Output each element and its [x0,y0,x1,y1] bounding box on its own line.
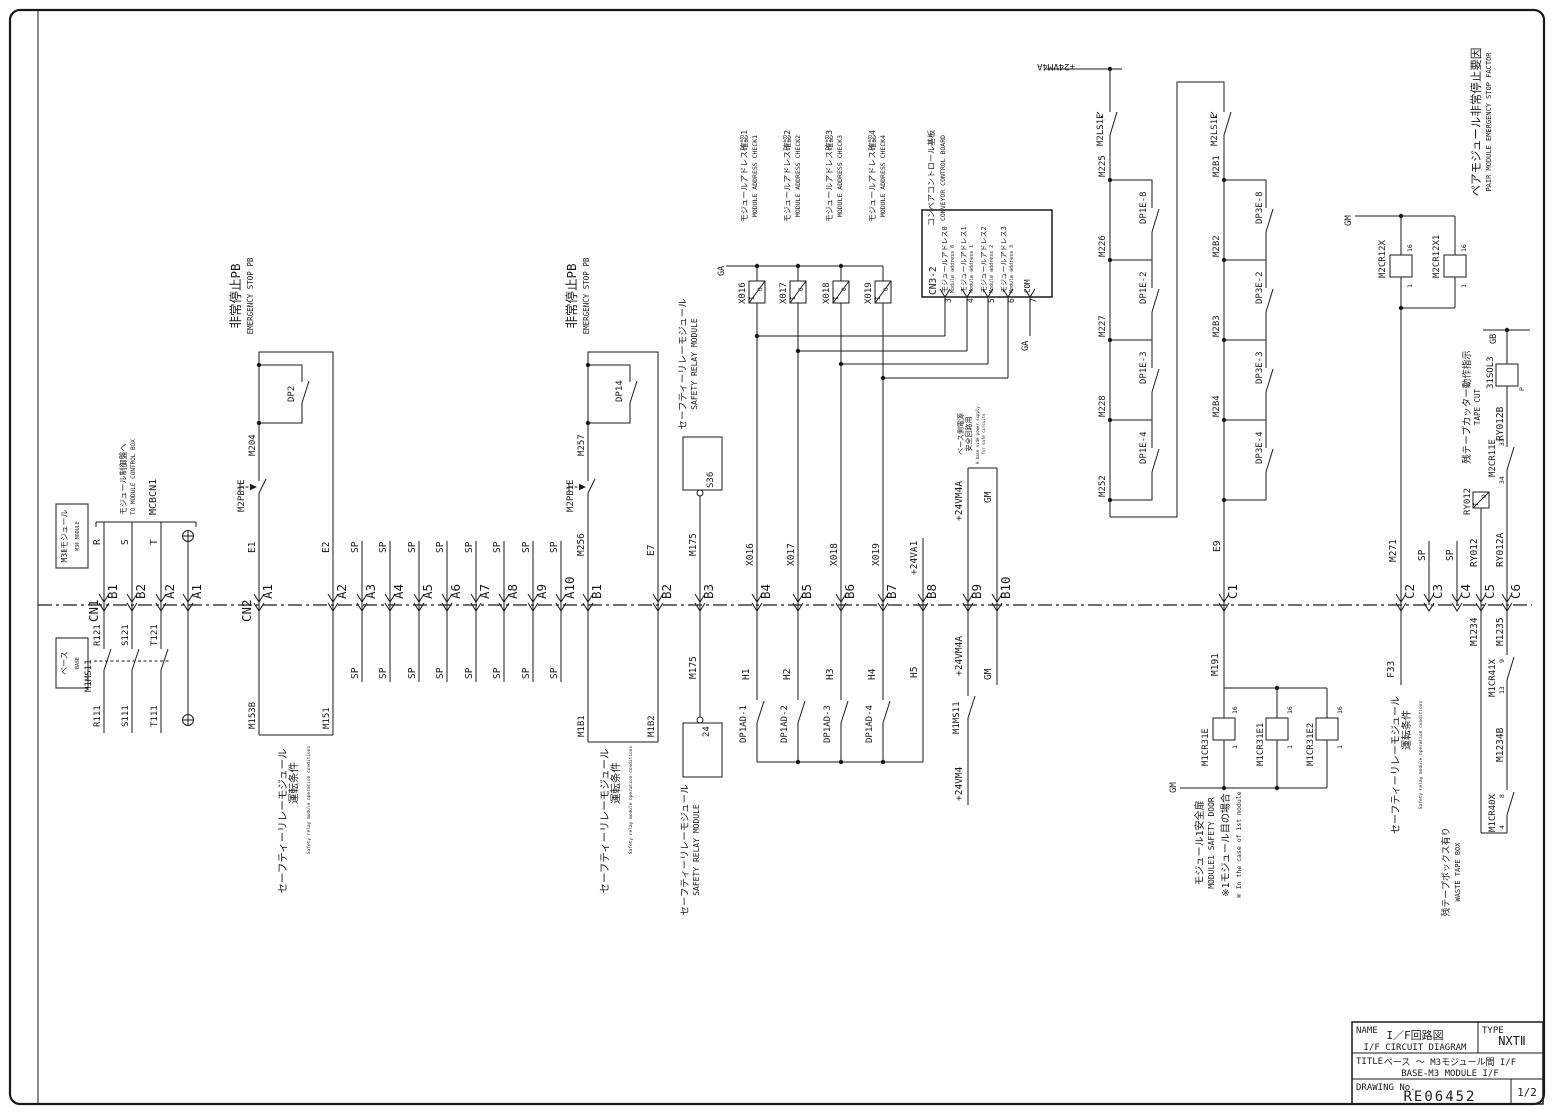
diagram-label: 34 [1498,476,1506,484]
diagram-label: ベース [60,651,69,675]
connector-pin-A2: A2 [328,584,349,611]
diagram-label: M257 [577,434,587,456]
sheet-frame [10,10,1544,1104]
connector-pin-A5: A5 [414,584,435,611]
diagram-label: A base side power supply. [975,404,980,464]
title-block-name-en: I/F CIRCUIT DIAGRAM [1364,1043,1468,1053]
diagram-label: 24 [702,726,712,737]
diagram-label: DP1E-4 [1139,431,1149,464]
diagram-label: I [833,296,840,300]
pin-label: A2 [334,584,349,599]
title-block-page: 1/2 [1517,1086,1537,1099]
diagram-label: M225 [1098,155,1108,177]
pin-label: B2 [133,584,148,599]
connector-pin-B10: B10 [992,576,1013,611]
diagram-label: DP14 [615,380,625,402]
diagram-label: X017 [786,543,797,566]
diagram-label: M1MS11 [84,659,94,692]
diagram-label: Safety relay module operation conditions [628,746,634,855]
diagram-label: O [757,287,764,291]
pin-label: B7 [884,584,899,599]
diagram-label: H3 [825,669,836,680]
diagram-label: M1B2 [647,715,657,737]
diagram-label: +24VM4A [954,481,965,521]
diagram-label: SP [378,667,389,679]
connector-pin-A2: A2 [156,584,177,611]
connector-pin-A7: A7 [471,584,492,611]
diagram-label: 運転条件 [609,762,622,804]
diagram-label: M2LS1E [1096,113,1106,146]
diagram-label: DP3E-4 [1255,431,1265,464]
diagram-label: MCBCN1 [148,479,159,515]
drawing-sheet: M3ⅡモジュールM3Ⅱ MODULEベースBASECN1モジュール制御盤へTO … [0,0,1554,1114]
diagram-label: Safety relay module operation conditions [306,746,312,855]
diagram-label: X018 [829,543,840,566]
title-block-title-label: TITLE [1356,1057,1383,1067]
diagram-label: 5 [987,298,996,303]
diagram-label: M175 [688,656,699,679]
diagram-label: M191 [1210,653,1221,676]
diagram-label: E2 [321,542,332,553]
diagram-label: O [1481,494,1488,498]
diagram-label: TAPE CUT [1473,388,1482,425]
diagram-label: M1MS11 [952,701,962,734]
diagram-label: WASTE TAPE BOX [1454,842,1462,902]
diagram-label: M3Ⅱモジュール [60,509,69,562]
diagram-label: E9 [1212,540,1223,552]
title-block-title-en: BASE-M3 MODULE I/F [1401,1069,1499,1079]
diagram-label: DP1E-3 [1139,351,1149,384]
diagram-label: M1CR31E [1201,728,1211,766]
diagram-label: M1234B [1495,727,1506,762]
diagram-label: M2PB1E [566,479,576,512]
pin-label: B1 [105,584,120,599]
diagram-label: MODULE ADDRESS CHECK1 [751,135,759,217]
diagram-label: GB [1489,334,1499,344]
diagram-label: M228 [1098,395,1108,417]
diagram-label: モジュールアドレス確認4 [867,130,877,222]
diagram-label: モジュール1安全扉 [1193,800,1206,885]
circuit-diagram: M3ⅡモジュールM3Ⅱ MODULEベースBASECN1モジュール制御盤へTO … [0,0,1554,1114]
pin-label: B5 [799,584,814,599]
diagram-label: M227 [1098,315,1108,337]
diagram-label: ※1モジュール目の場合 [1219,793,1232,897]
diagram-label: 16 [1460,244,1468,252]
connector-pin-C5: C5 [1476,584,1497,611]
diagram-label: R121 [93,624,103,646]
diagram-label: SP [407,667,418,679]
pin-label: A3 [363,584,378,599]
diagram-label: 7 [1029,298,1038,303]
diagram-label: S121 [121,624,131,646]
diagram-label: E7 [646,545,657,556]
diagram-label: 16 [1231,706,1239,714]
diagram-label: H4 [867,668,878,680]
diagram-label: MODULE ADDRESS CHECK2 [794,135,802,217]
pin-label: A9 [534,584,549,599]
title-block-type-value: NXTⅡ [1498,1034,1526,1048]
diagram-label: GM [1169,782,1179,793]
diagram-label: M204 [248,434,258,456]
diagram-label: X017 [779,282,789,304]
wiring [94,69,1530,833]
diagram-label: セーフティーリレーモジュール [680,784,691,916]
diagram-label: E1 [247,541,258,553]
diagram-label: +24VA1 [909,540,920,575]
diagram-label: EMERGENCY STOP PB [582,257,591,334]
diagram-label: EMERGENCY STOP PB [246,257,255,334]
diagram-label: 16 [1336,706,1344,714]
diagram-label: SP [378,541,389,553]
diagram-label: DP3E-2 [1255,271,1265,304]
diagram-label: MODULE1 SAFETY DOOR [1207,797,1216,889]
pin-label: C4 [1458,584,1473,599]
diagram-label: ペアモジュール非常停止要因 [1469,48,1483,197]
diagram-label: DP3E-3 [1255,351,1265,384]
pin-label: C3 [1430,584,1445,599]
diagram-label: X018 [822,282,832,304]
connector-pin-A8: A8 [499,584,520,611]
diagram-label: T121 [150,624,160,646]
diagram-label: DP1E-8 [1139,191,1149,224]
connector-pin-B3: B3 [695,584,716,611]
diagram-label: RY012 [1469,538,1480,567]
diagram-label: X019 [864,282,874,304]
diagram-label: I [1473,502,1480,506]
diagram-label: モジュールアドレス確認3 [824,130,834,222]
diagram-label: GM [1344,215,1354,226]
diagram-label: RY012 [1463,488,1473,515]
diagram-label: GM [983,668,994,680]
connector-pin-B7: B7 [878,584,899,611]
diagram-label: X016 [745,543,756,566]
diagram-label: DP2 [287,386,297,402]
diagram-label: MODULE ADDRESS CHECK3 [836,135,844,217]
diagram-label: モジュールアドレス確認1 [739,130,749,222]
diagram-label: 1 [1406,284,1414,288]
diagram-label: H2 [782,669,793,680]
diagram-label: 33 [1498,438,1506,446]
diagram-label: M1CR31E1 [1256,723,1266,766]
connector-pin-A6: A6 [442,584,463,611]
diagram-label: 16 [1406,244,1414,252]
connector-pins: B1B2A2A1A1A2A3A4A5A6A7A8A9A10B1B2B3B4B5B… [99,576,1523,611]
pin-label: A10 [562,576,577,599]
diagram-label: Module address 0 [950,245,956,293]
diagram-label: DP1AD-1 [739,705,749,743]
pin-label: B10 [998,576,1013,599]
diagram-label: SP [521,667,532,679]
diagram-label: ※ In the case of 1st module [1235,791,1243,898]
diagram-labels: M3ⅡモジュールM3Ⅱ MODULEベースBASECN1モジュール制御盤へTO … [60,48,1526,917]
diagram-label: M2PB1E [237,479,247,512]
diagram-label: モジュールアドレス0 [941,226,949,293]
diagram-label: モジュールアドレス1 [960,226,968,293]
diagram-label: 残テープボックス有り [1440,827,1452,916]
connector-pin-B1: B1 [583,584,604,611]
connector-pin-A9: A9 [528,584,549,611]
diagram-label: O [883,287,890,291]
connector-pin-C6: C6 [1502,584,1523,611]
pin-label: A4 [391,584,406,599]
diagram-label: M256 [576,533,587,556]
diagram-label: H5 [909,667,920,678]
diagram-label: S36 [706,472,716,488]
title-block-name-label: NAME [1356,1026,1378,1036]
diagram-label: DP1AD-4 [865,705,875,743]
diagram-label: M1CR41X [1488,658,1498,697]
diagram-label: DP1AD-2 [780,705,790,743]
diagram-label: 6 [1007,298,1016,303]
diagram-label: SP [549,667,560,679]
pin-label: B1 [589,584,604,599]
diagram-label: S [120,539,131,545]
diagram-label: T111 [150,705,160,727]
pin-label: C5 [1482,584,1497,599]
diagram-label: SP [350,667,361,679]
diagram-label: X016 [738,282,748,304]
diagram-label: セーフティーリレーモジュール [678,298,689,430]
diagram-label: M1234 [1469,617,1480,646]
diagram-label: 8 [1498,794,1506,798]
diagram-label: S111 [121,705,131,727]
diagram-label: SP [549,541,560,553]
diagram-label: Module address 3 [1009,245,1015,293]
connector-pin-A1: A1 [254,584,275,611]
diagram-label: 運転条件 [287,762,300,804]
diagram-label: RY012B [1495,406,1506,441]
diagram-label: SAFETY RELAY MODULE [692,804,701,896]
diagram-label: SP [521,541,532,553]
diagram-label: セーフティーリレーモジュール [1390,696,1402,834]
diagram-label: 3 [944,298,953,303]
diagram-label: M226 [1098,235,1108,257]
diagram-label: R111 [93,705,103,727]
connector-pin-B6: B6 [836,584,857,611]
diagram-label: M3Ⅱ MODULE [75,521,81,551]
diagram-label: M271 [1388,539,1399,562]
connector-pin-B9: B9 [963,584,984,611]
diagram-label: DP1E-2 [1139,271,1149,304]
pin-label: A7 [477,584,492,599]
pin-label: C6 [1508,584,1523,599]
diagram-label: 13 [1498,686,1506,694]
diagram-label: T [149,539,160,545]
diagram-label: RY012A [1495,532,1506,567]
connector-pin-A3: A3 [357,584,378,611]
diagram-label: M2B1 [1212,155,1222,177]
diagram-label: I [790,296,797,300]
pin-label: B3 [701,584,716,599]
diagram-label: GA [1021,341,1031,351]
diagram-label: Module address 2 [989,245,995,293]
diagram-label: M2LS1E [1210,113,1220,146]
diagram-label: CONVEYOR CONTROL BOARD [939,135,947,221]
diagram-label: M2B2 [1212,235,1222,257]
connector-pin-C1: C1 [1219,584,1240,611]
diagram-label: 1 [1460,284,1468,288]
pin-label: B6 [842,584,857,599]
diagram-label: O [841,287,848,291]
diagram-label: 非常停止PB [228,263,243,328]
diagram-label: M2CR12X1 [1432,235,1442,278]
diagram-label: M153B [248,702,258,729]
diagram-label: 残テープカッター動作指示 [1461,350,1473,463]
diagram-label: 4 [966,298,975,303]
pin-label: C1 [1225,584,1240,599]
diagram-label: M1B1 [577,715,587,737]
title-block-title-jp: ベース 〜 M3モジュール間 I/F [1384,1057,1516,1068]
diagram-label: COM [1023,279,1032,293]
diagram-label: 9 [1498,659,1506,663]
diagram-label: SAFETY RELAY MODULE [690,318,699,410]
connector-pin-A10: A10 [556,576,577,611]
connector-pin-A4: A4 [385,584,406,611]
pin-label: A1 [189,584,204,599]
diagram-label: SP [464,541,475,553]
title-block: NAME I／F回路図 I/F CIRCUIT DIAGRAM TYPE NXT… [1352,1022,1543,1105]
diagram-label: SP [492,667,503,679]
diagram-label: コンベアコントロール基板 [926,130,936,226]
diagram-label: SP [464,667,475,679]
diagram-label: I [749,296,756,300]
diagram-label: 16 [1286,706,1294,714]
diagram-label: MODULE ADDRESS CHECK4 [879,135,887,217]
diagram-label: M252 [1098,475,1108,497]
diagram-label: 1 [1336,745,1344,749]
diagram-label: for safe circuits [981,413,986,455]
diagram-label: ベース側電源 [956,413,965,455]
pin-label: B9 [969,584,984,599]
diagram-label: 1 [1286,745,1294,749]
diagram-label: M175 [688,533,699,556]
diagram-label: R [92,539,103,545]
diagram-label: SP [1417,549,1428,561]
diagram-label: SP [492,541,503,553]
diagram-label: GM [983,491,994,503]
diagram-label: 運転条件 [1400,710,1413,750]
diagram-label: SP [350,541,361,553]
diagram-label: SP [435,667,446,679]
diagram-label: M151 [322,707,332,729]
connector-pin-B4: B4 [752,584,773,611]
diagram-label: P [1518,387,1526,391]
pin-label: B4 [758,584,773,599]
diagram-label: 4 [1498,825,1506,829]
diagram-label: BASE [75,657,81,669]
title-block-name-jp: I／F回路図 [1386,1029,1443,1042]
diagram-label: M1CR31E2 [1306,723,1316,766]
diagram-label: DP3E-8 [1255,191,1265,224]
pin-label: A5 [420,584,435,599]
connector-pin-B8: B8 [918,584,939,611]
diagram-label: DP1AD-3 [823,705,833,743]
diagram-label: M2CR11E [1488,439,1498,477]
connector-pin-C3: C3 [1424,584,1445,611]
diagram-label: 非常停止PB [564,263,579,328]
diagram-label: O [798,287,805,291]
diagram-label: Safety relay module operation conditions [1418,701,1424,810]
diagram-label: CN1 [86,599,101,622]
diagram-label: 1 [1231,745,1239,749]
diagram-label: モジュールアドレス確認2 [782,130,792,222]
connector-pin-C4: C4 [1452,584,1473,611]
diagram-label: +24VM4A [1036,61,1075,71]
diagram-label: M1CR40X [1488,793,1498,832]
connector-pin-A1: A1 [183,584,204,611]
title-block-drawing-no: RE06452 [1403,1089,1476,1105]
diagram-label: モジュールアドレス3 [1000,226,1008,293]
diagram-label: M2CR12X [1378,239,1388,278]
connector-pin-B1: B1 [99,584,120,611]
diagram-label: 31SOL3 [1486,356,1496,389]
diagram-label: I [875,296,882,300]
connector-pin-B2: B2 [127,584,148,611]
diagram-label: GA [717,266,727,276]
connector-pin-B5: B5 [793,584,814,611]
diagram-label: 安全回路用 [964,417,973,452]
pin-label: A1 [260,584,275,599]
connector-pin-B2: B2 [653,584,674,611]
diagram-label: H1 [741,668,752,680]
diagram-label: M2B4 [1212,395,1222,417]
diagram-label: SP [435,541,446,553]
diagram-label: CN3-2 [928,266,939,295]
diagram-label: モジュール制御盤へ [118,444,128,515]
connector-pin-C2: C2 [1396,584,1417,611]
diagram-label: +24VM4A [954,636,965,676]
pin-label: A8 [505,584,520,599]
pin-label: C2 [1402,584,1417,599]
diagram-label: モジュールアドレス2 [980,226,988,293]
diagram-label: SP [1445,549,1456,561]
diagram-label: F33 [1386,661,1397,678]
diagram-label: M2B3 [1212,315,1222,337]
pin-label: A6 [448,584,463,599]
diagram-label: CN2 [239,599,254,622]
diagram-label: M1235 [1495,617,1506,646]
diagram-label: X019 [871,543,882,566]
diagram-label: SP [407,541,418,553]
pin-label: A2 [162,584,177,599]
diagram-label: +24VM4 [954,766,965,801]
diagram-label: TO MODULE CONTROL BOX [130,439,137,515]
pin-label: B2 [659,584,674,599]
pin-label: B8 [924,584,939,599]
diagram-label: Module address 1 [969,245,975,293]
diagram-label: PAIR MODULE EMERGENCY STOP FACTOR [1485,52,1493,192]
